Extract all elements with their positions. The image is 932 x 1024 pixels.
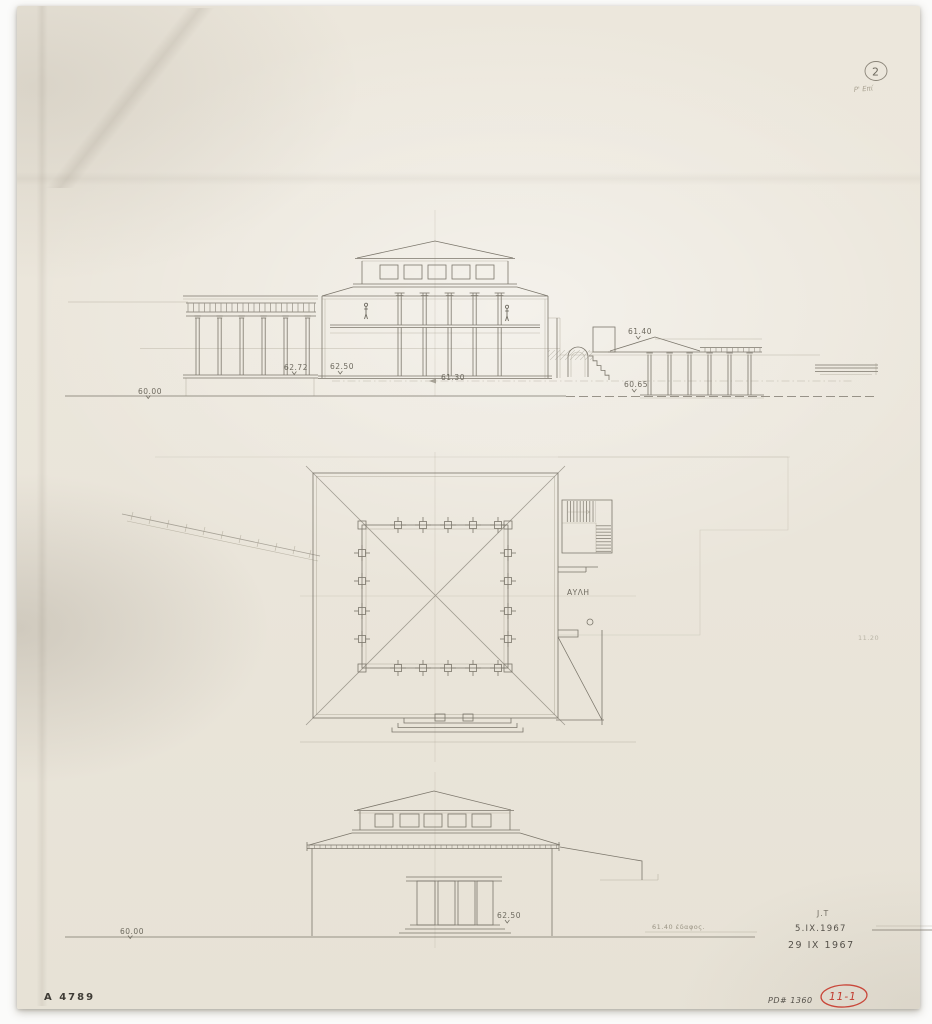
human-figure [505,305,509,321]
entrance-portico [399,877,511,933]
front-elevation-drawing: 62.50 60.00 61.40 έδαφος. [65,772,932,948]
courtyard-plan: ΑΥΛΗ [558,457,788,637]
plan-annex-roof [556,630,604,725]
plan-drawing: ΑΥΛΗ 11.20 [122,452,879,762]
central-building-section [318,241,560,379]
courtyard-label: ΑΥΛΗ [567,588,589,597]
construction-lines-left [122,512,320,561]
level-label: 61.30 [441,373,465,382]
level-label: 62.50 [497,911,521,920]
stair-passage-section [548,327,617,380]
date-first: 5.IX.1967 [795,924,847,934]
dimension-note: 11.20 [858,634,879,642]
draftsman-initials: J.T [816,909,829,918]
level-label: 62.72 [284,363,308,372]
level-label: 60.00 [138,387,162,396]
entrance-steps-plan [392,714,523,732]
inventory-number: A 4789 [44,992,95,1003]
sheet-number: 2 [872,66,879,79]
ground-note: 61.40 έδαφος. [652,923,705,931]
level-label: 61.40 [628,327,652,336]
sheet-number-note: P' Επί [853,84,875,94]
section-drawing: 61.40 62.72 62.50 61.30 60.65 60.00 [65,210,878,399]
level-label: 62.50 [330,362,354,371]
drawing-number: PD# 1360 [768,996,813,1005]
red-index-number: 11-1 [829,991,857,1003]
page-background: { "sheet": { "paper_color": "#eae5da", "… [0,0,932,1024]
architectural-drawing: 61.40 62.72 62.50 61.30 60.65 60.00 [0,0,932,1024]
sheet-annotations: 2 P' Επί J.T 5.IX.1967 29 IX 1967 A 4789… [44,62,887,1009]
left-stoa [183,296,318,396]
main-building-plan [306,466,565,725]
level-label: 60.00 [120,927,144,936]
plan-stairwell [562,500,612,553]
human-figure [364,303,368,319]
level-label: 60.65 [624,380,648,389]
section-far-right-wall [815,363,878,375]
date-second: 29 IX 1967 [788,940,855,951]
